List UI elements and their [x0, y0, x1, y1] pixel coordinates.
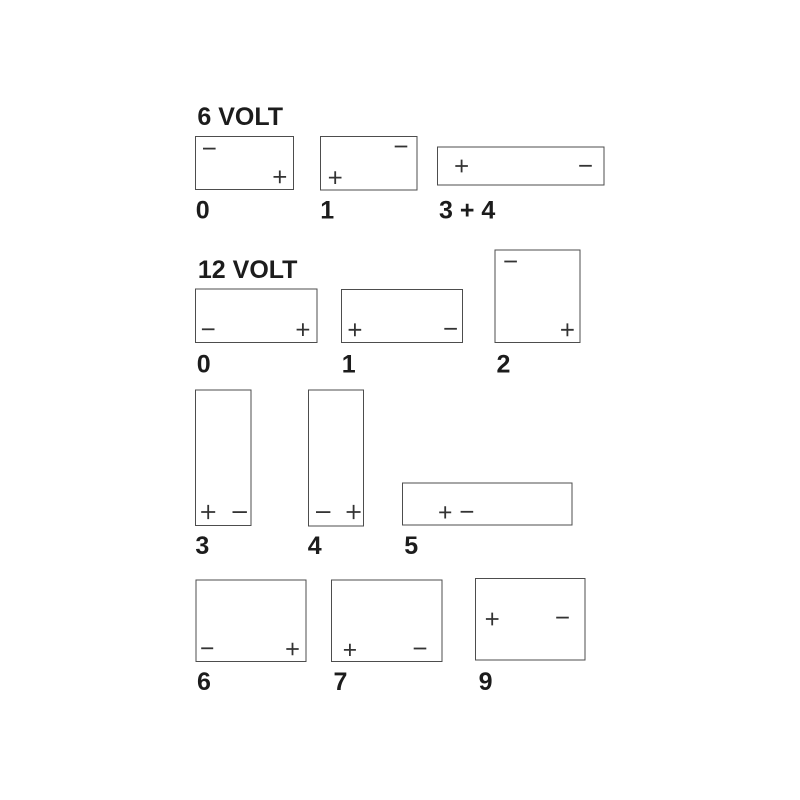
svg-text:3 + 4: 3 + 4	[439, 197, 495, 225]
svg-text:7: 7	[334, 668, 348, 696]
svg-text:3: 3	[195, 532, 209, 560]
svg-text:0: 0	[196, 197, 210, 225]
svg-text:4: 4	[308, 532, 322, 560]
svg-text:9: 9	[479, 668, 493, 696]
svg-text:6 VOLT: 6 VOLT	[197, 103, 283, 131]
svg-text:5: 5	[404, 532, 418, 560]
svg-text:0: 0	[197, 351, 211, 379]
svg-text:12 VOLT: 12 VOLT	[198, 256, 298, 284]
svg-text:6: 6	[197, 668, 211, 696]
svg-text:1: 1	[320, 197, 334, 225]
svg-text:1: 1	[342, 351, 356, 379]
svg-text:2: 2	[497, 351, 511, 379]
